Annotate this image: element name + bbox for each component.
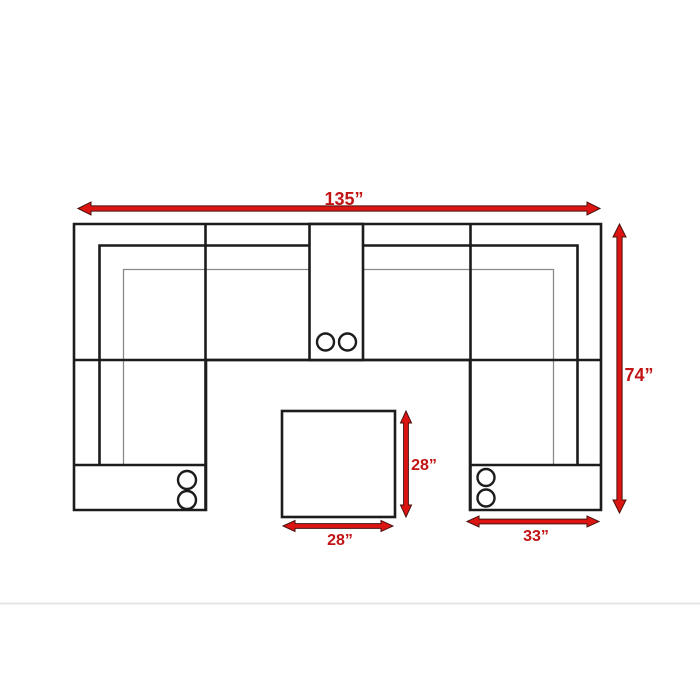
furniture-dimension-diagram: 135” 74” 28” 28” 33” (0, 0, 700, 700)
ottoman-depth-arrow (401, 411, 412, 517)
cupholder-icon (317, 334, 334, 351)
ottoman-depth-label: 28” (411, 457, 437, 474)
ottoman-width-label: 28” (327, 532, 353, 549)
overall-depth-label: 74” (624, 365, 653, 385)
ottoman (282, 411, 395, 517)
cupholder-icon (178, 491, 196, 509)
cupholder-icon (478, 469, 495, 486)
cupholder-icon (178, 471, 196, 489)
chaise-width-arrow (467, 516, 599, 527)
sofa-dimension-drawing: 135” 74” 28” 28” 33” (0, 0, 700, 700)
chaise-width-label: 33” (523, 528, 549, 545)
ottoman-width-arrow (283, 521, 393, 532)
cupholder-icon (478, 490, 495, 507)
cupholder-icon (339, 334, 356, 351)
overall-width-label: 135” (324, 189, 363, 209)
